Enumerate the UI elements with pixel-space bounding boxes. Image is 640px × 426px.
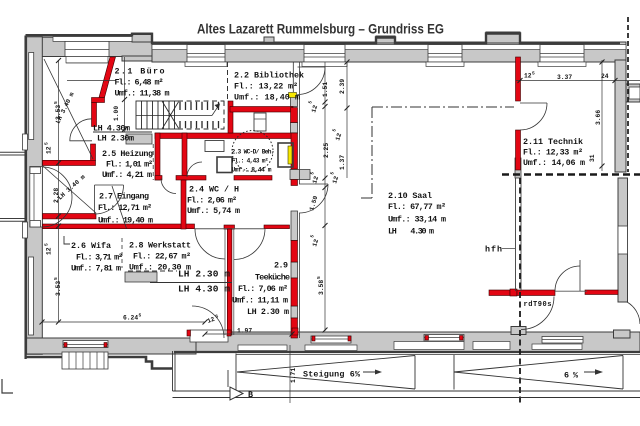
svg-text:2.2 Bibliothek: 2.2 Bibliothek [234,71,304,81]
svg-text:2.10 Saal: 2.10 Saal [388,191,432,201]
svg-text:12: 12 [46,247,53,255]
svg-text:Umf.: 11,11 m: Umf.: 11,11 m [232,296,288,306]
svg-text:Teeküche: Teeküche [255,273,290,283]
svg-text:3.66: 3.66 [595,110,602,125]
svg-text:Fl.: 4,43 m²: Fl.: 4,43 m² [232,158,269,165]
svg-text:2.3 WC-D/ Beh.: 2.3 WC-D/ Beh. [232,149,275,156]
svg-text:B: B [248,390,253,400]
svg-text:rdT90s: rdT90s [524,301,552,309]
svg-text:Fl.: 1,01 m²: Fl.: 1,01 m² [106,160,153,170]
svg-text:5: 5 [44,243,50,246]
svg-text:5: 5 [44,142,50,145]
svg-text:5: 5 [139,313,142,319]
svg-text:2.39: 2.39 [339,79,346,94]
svg-text:1.51: 1.51 [322,82,329,97]
svg-text:5: 5 [316,276,322,279]
svg-text:Fl.: 13,22 m²: Fl.: 13,22 m² [234,82,298,92]
svg-text:Umf.: 14,06 m: Umf.: 14,06 m [523,158,585,168]
svg-text:LH 4.30 m: LH 4.30 m [388,227,434,237]
svg-text:Fl.: 3,71 m²: Fl.: 3,71 m² [76,253,123,263]
svg-text:2.8 Werkstatt: 2.8 Werkstatt [129,241,191,251]
svg-text:1.37: 1.37 [339,155,346,170]
svg-text:Umf.: 18,40 m: Umf.: 18,40 m [234,93,300,103]
svg-text:Fl.: 22,67 m²: Fl.: 22,67 m² [133,252,191,262]
svg-text:3.37: 3.37 [557,74,572,81]
svg-text:1.71: 1.71 [290,368,297,383]
svg-text:2.25: 2.25 [323,143,330,158]
svg-text:3.58: 3.58 [318,280,325,295]
svg-text:12: 12 [46,146,53,154]
svg-text:2.9: 2.9 [274,261,288,271]
svg-text:LH 4.30 m: LH 4.30 m [178,284,230,295]
svg-text:Altes Lazarett Rummelsburg – G: Altes Lazarett Rummelsburg – Grundriss E… [197,22,444,37]
svg-text:5: 5 [53,277,59,280]
svg-text:Fl.: 2,06 m²: Fl.: 2,06 m² [187,196,237,206]
svg-text:Umf.: 19,40 m: Umf.: 19,40 m [98,216,153,226]
svg-text:LH 4.30m: LH 4.30m [93,124,130,134]
svg-text:LH 2.30 m: LH 2.30 m [178,269,230,280]
svg-text:LH 2.30 m: LH 2.30 m [247,307,289,317]
svg-text:hfh: hfh [485,245,502,255]
svg-text:1.97: 1.97 [237,328,252,335]
svg-text:2.4 WC / H: 2.4 WC / H [189,185,239,195]
svg-text:Fl.: 12,71 m²: Fl.: 12,71 m² [98,203,152,213]
svg-text:Umf.: 5,74 m: Umf.: 5,74 m [187,206,240,216]
svg-text:Fl.: 67,77 m²: Fl.: 67,77 m² [388,202,446,212]
svg-text:5: 5 [53,101,59,104]
svg-text:2.11 Technik: 2.11 Technik [523,137,583,147]
svg-text:Umf.: 7,81 m: Umf.: 7,81 m [71,264,121,274]
svg-text:Umf.: 11,38 m: Umf.: 11,38 m [115,89,170,99]
svg-text:2.5 Heizung: 2.5 Heizung [102,149,153,159]
svg-text:Fl.: 12,33 m²: Fl.: 12,33 m² [523,148,583,158]
svg-text:12: 12 [524,73,532,80]
svg-text:3.53: 3.53 [55,281,62,296]
svg-text:1.00: 1.00 [113,106,120,121]
svg-text:Steigung 6%: Steigung 6% [303,370,361,380]
svg-text:2.7 Eingang: 2.7 Eingang [99,192,149,202]
svg-text:31: 31 [589,154,596,162]
svg-text:Fl.: 7,06 m²: Fl.: 7,06 m² [238,284,288,294]
svg-text:LH 2.30m: LH 2.30m [97,134,134,144]
svg-text:2.6 Wifa: 2.6 Wifa [71,241,111,251]
svg-text:2.1 Büro: 2.1 Büro [115,67,165,77]
svg-text:6.24: 6.24 [123,315,138,322]
svg-text:5: 5 [532,71,535,77]
svg-text:24: 24 [601,73,609,80]
svg-text:Umf.: 4,21 m: Umf.: 4,21 m [102,170,152,180]
svg-text:Fl.: 6,48 m²: Fl.: 6,48 m² [115,78,164,88]
svg-text:Umf.: 33,14 m: Umf.: 33,14 m [388,215,446,225]
svg-text:Umf.: 8,44 m: Umf.: 8,44 m [232,167,272,174]
